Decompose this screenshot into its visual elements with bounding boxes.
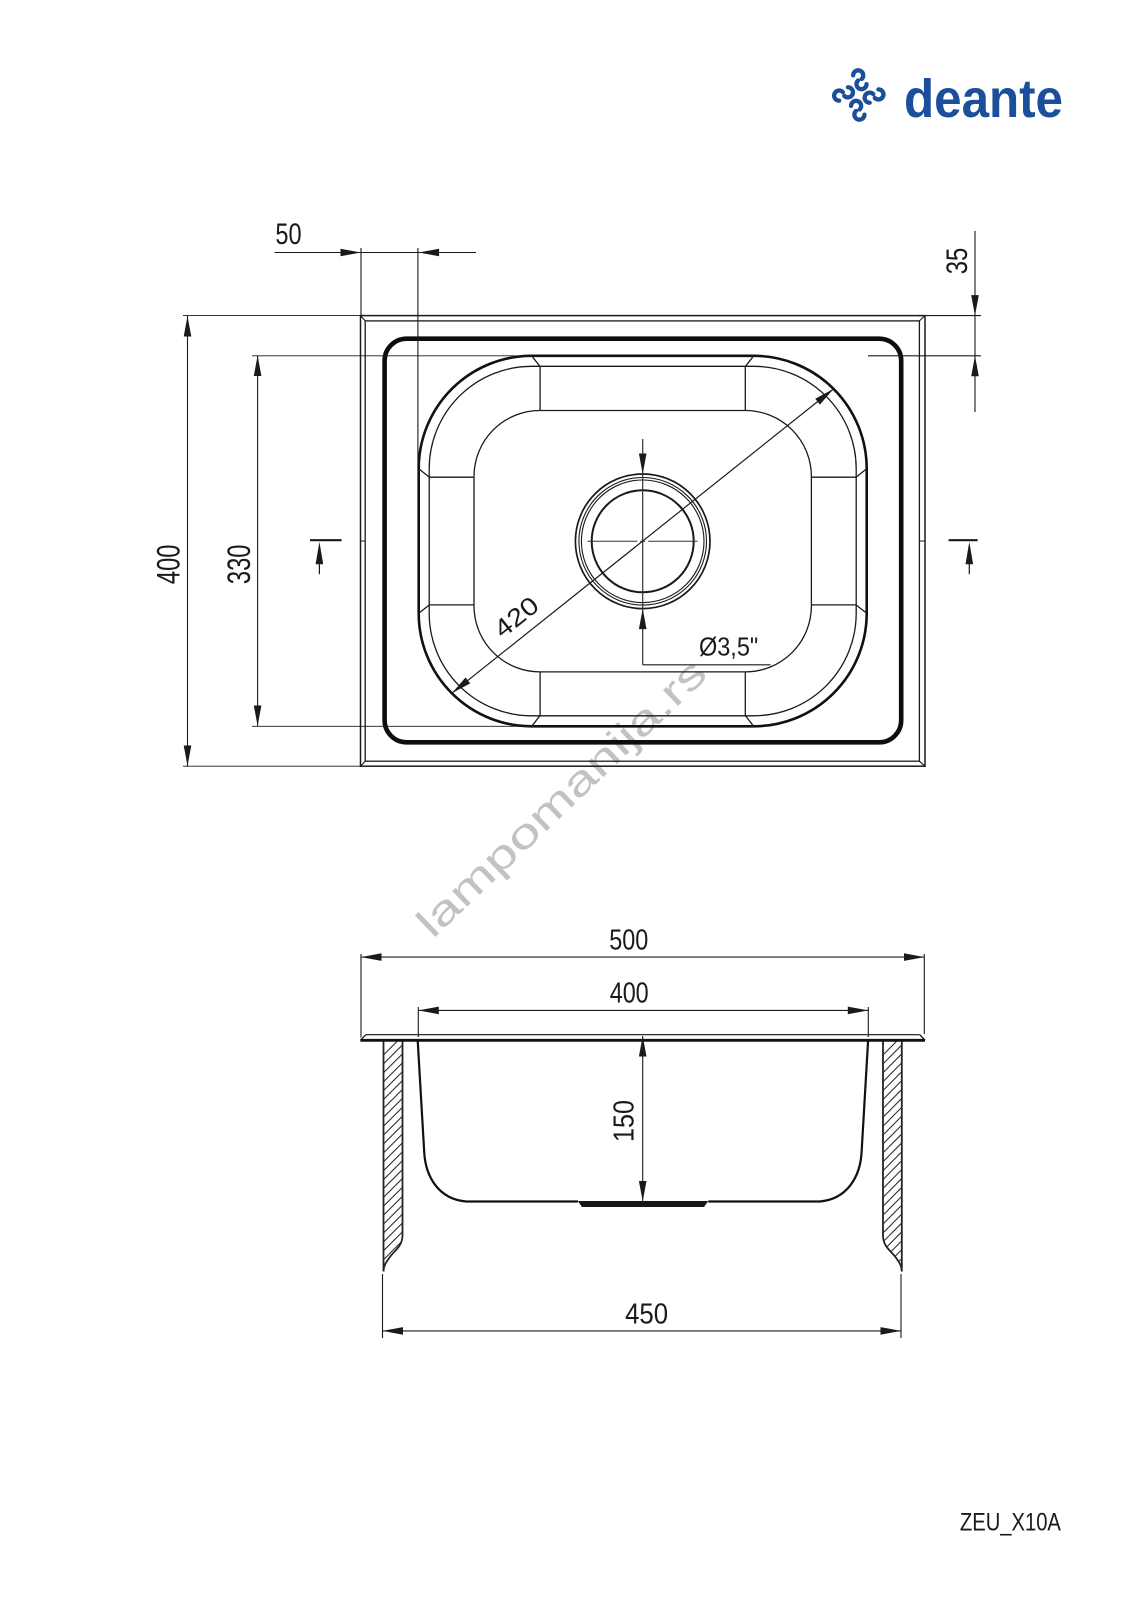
svg-text:150: 150 bbox=[609, 1100, 641, 1142]
svg-text:400: 400 bbox=[610, 978, 649, 1010]
svg-text:Ø3,5": Ø3,5" bbox=[699, 634, 758, 662]
svg-text:50: 50 bbox=[275, 218, 301, 251]
svg-text:400: 400 bbox=[151, 545, 187, 585]
svg-text:500: 500 bbox=[609, 924, 648, 956]
svg-text:ZEU_X10A: ZEU_X10A bbox=[960, 1509, 1061, 1537]
svg-text:330: 330 bbox=[221, 545, 257, 585]
svg-text:35: 35 bbox=[941, 248, 974, 275]
svg-text:deante: deante bbox=[904, 69, 1063, 129]
svg-text:450: 450 bbox=[625, 1298, 668, 1330]
